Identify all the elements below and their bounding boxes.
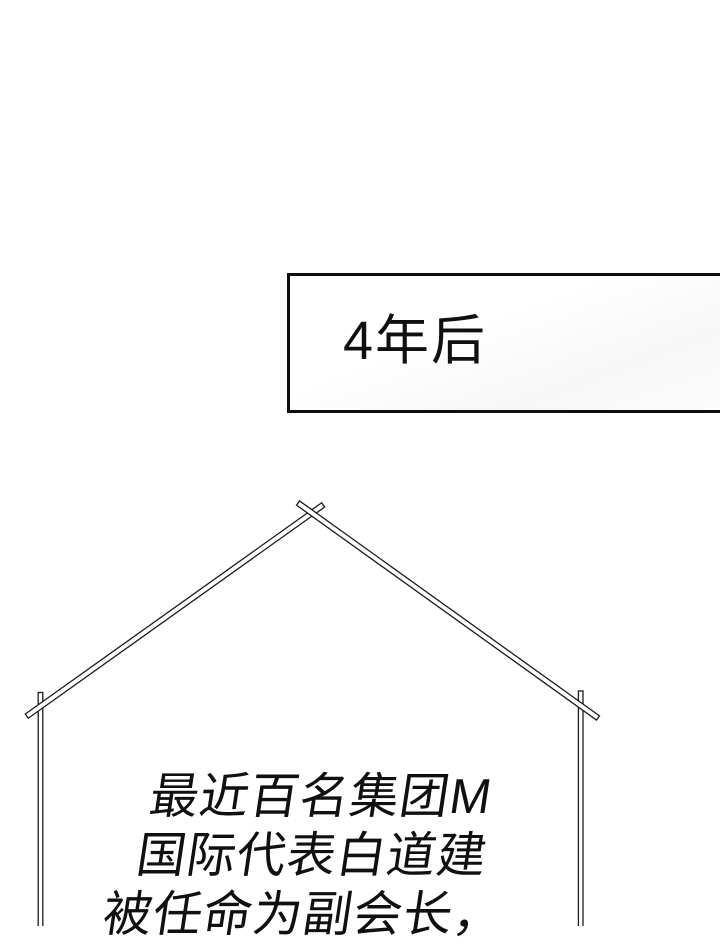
house-right-post: [578, 691, 583, 926]
narration-text: 最近百名集团M 国际代表白道建 被任命为副会长，: [83, 768, 541, 945]
house-roof-right-beam: [297, 501, 600, 720]
house-left-post: [38, 693, 43, 927]
narration-line-3: 被任命为副会长，: [83, 886, 524, 945]
house-roof-left-beam: [25, 503, 324, 719]
narration-line-2: 国际代表白道建: [92, 827, 533, 886]
narration-line-1: 最近百名集团M: [100, 768, 541, 827]
comic-page: 4年后 最近百名集团M 国际代表白道建 被任命为副会长，: [0, 0, 720, 926]
